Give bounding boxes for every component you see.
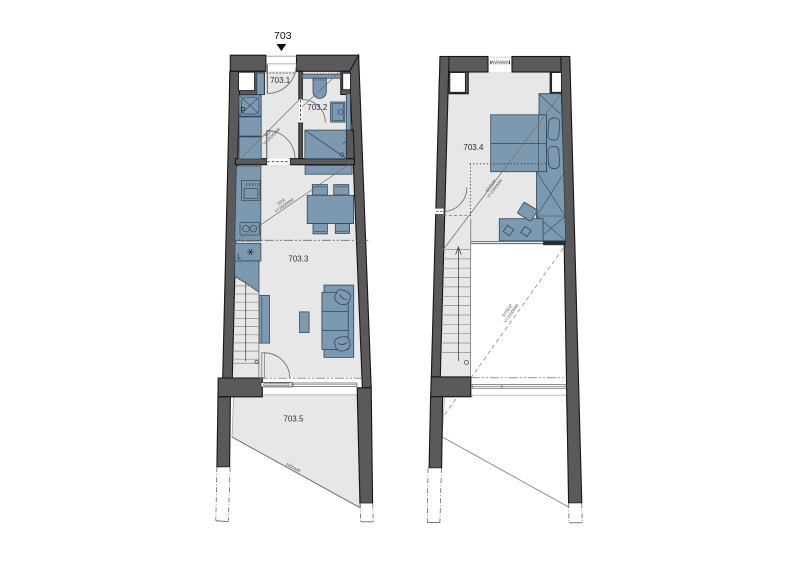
svg-text:703.1: 703.1: [270, 76, 291, 85]
svg-text:703.3: 703.3: [288, 254, 309, 263]
svg-text:P: P: [240, 106, 245, 115]
svg-text:L: L: [237, 254, 241, 261]
svg-text:703: 703: [274, 30, 292, 42]
svg-text:703.5: 703.5: [283, 415, 304, 424]
svg-text:703.4: 703.4: [463, 143, 484, 152]
svg-text:703.2: 703.2: [307, 103, 328, 112]
